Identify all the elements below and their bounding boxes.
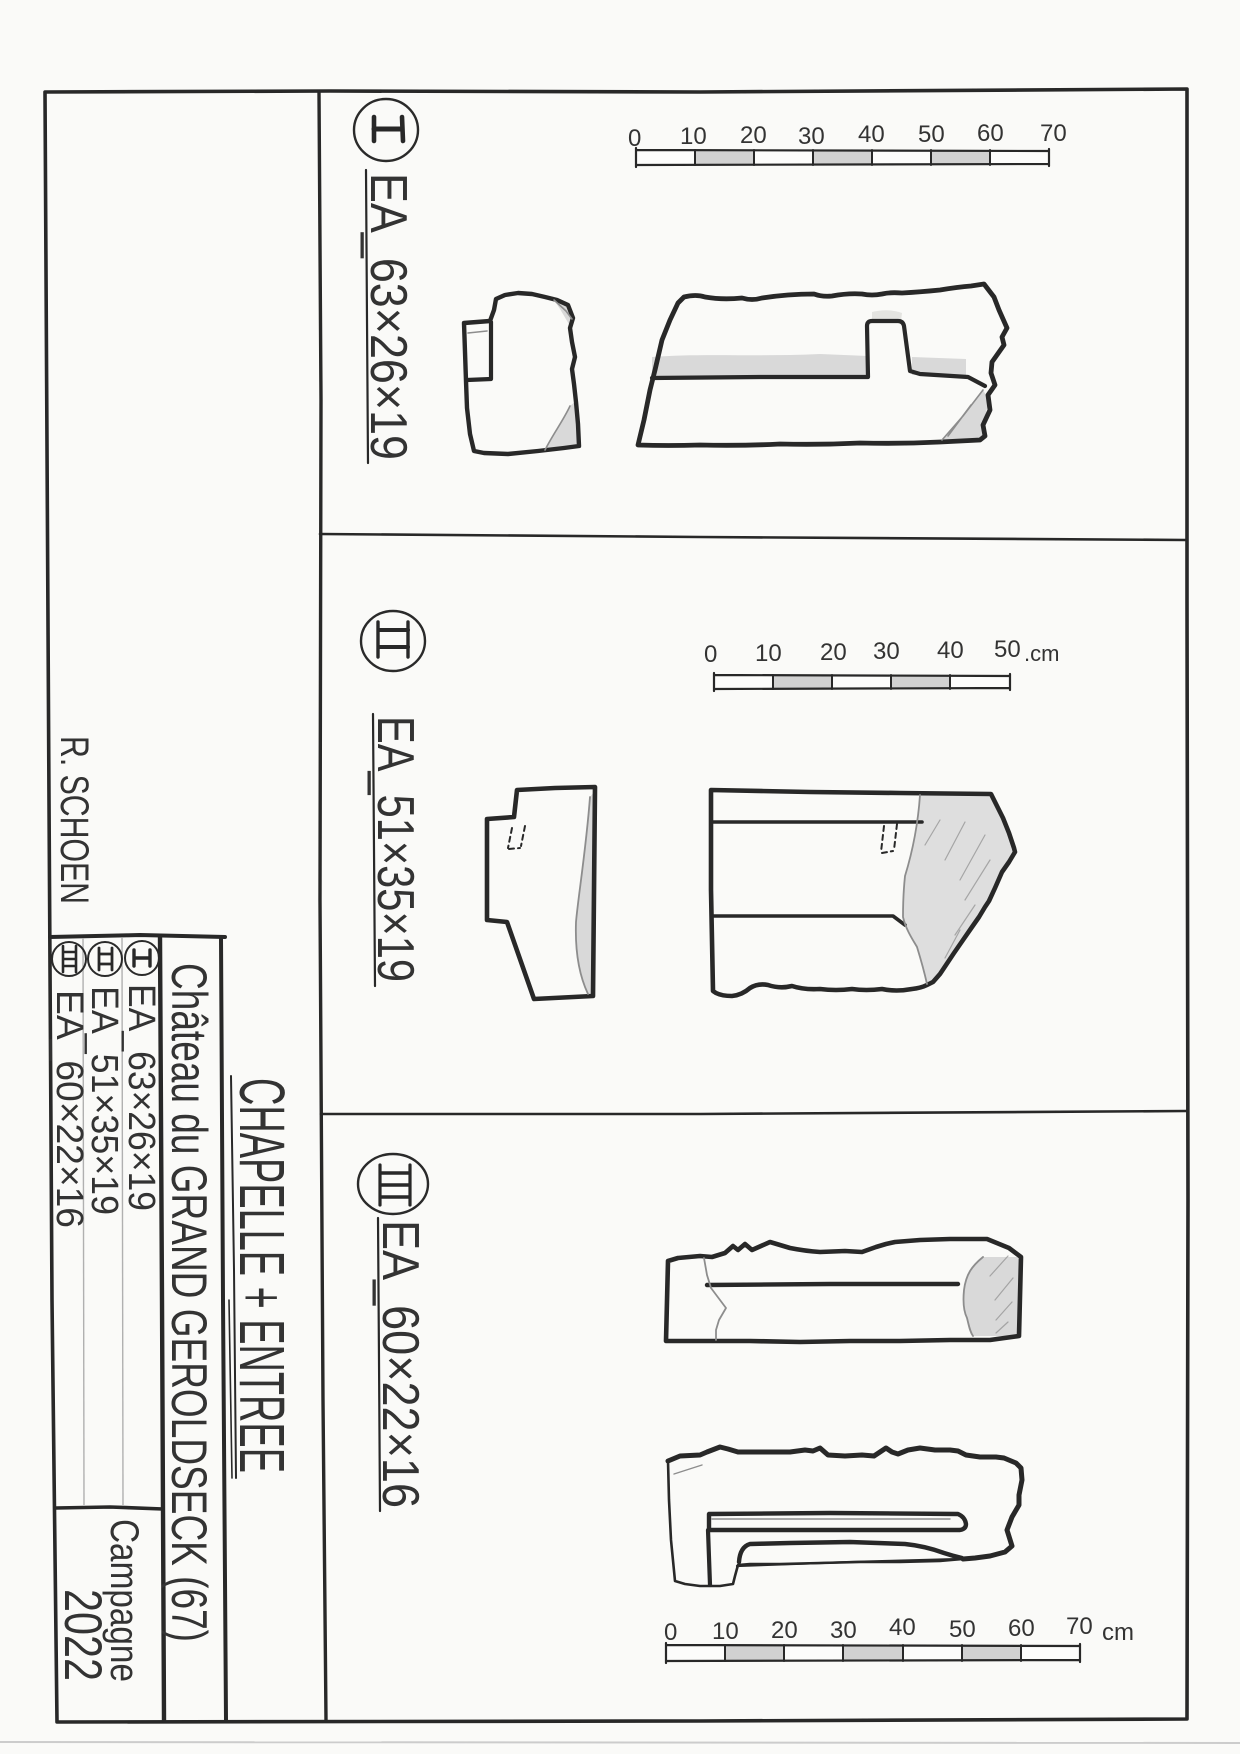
svg-text:20: 20	[820, 639, 847, 666]
svg-text:Château du GRAND GEROLDSECK (6: Château du GRAND GEROLDSECK (67)	[161, 963, 217, 1642]
svg-text:CHAPELLE + ENTREE: CHAPELLE + ENTREE	[226, 1078, 298, 1473]
svg-text:2022: 2022	[53, 1589, 112, 1681]
svg-text:30: 30	[830, 1617, 857, 1644]
svg-text:R. SCHOEN: R. SCHOEN	[52, 736, 96, 904]
svg-text:50: 50	[949, 1616, 976, 1643]
svg-text:40: 40	[889, 1614, 916, 1641]
svg-text:60: 60	[977, 120, 1004, 147]
svg-text:.cm: .cm	[1024, 641, 1059, 666]
svg-text:20: 20	[771, 1617, 798, 1644]
svg-text:10: 10	[712, 1618, 739, 1645]
svg-text:70: 70	[1066, 1613, 1093, 1640]
svg-text:40: 40	[937, 637, 964, 664]
svg-text:0: 0	[628, 125, 641, 152]
svg-text:50: 50	[994, 636, 1021, 663]
svg-text:20: 20	[740, 122, 767, 149]
svg-text:60: 60	[1008, 1615, 1035, 1642]
svg-text:0: 0	[704, 641, 717, 668]
svg-text:50: 50	[918, 121, 945, 148]
svg-text:40: 40	[858, 121, 885, 148]
svg-text:EA_63×26×19: EA_63×26×19	[120, 984, 162, 1211]
svg-text:cm: cm	[1102, 1619, 1134, 1646]
svg-text:0: 0	[664, 1619, 677, 1646]
svg-text:EA_60×22×16: EA_60×22×16	[48, 990, 90, 1228]
svg-text:10: 10	[680, 123, 707, 150]
svg-text:70: 70	[1040, 120, 1067, 147]
svg-text:30: 30	[873, 638, 900, 665]
svg-text:10: 10	[755, 640, 782, 667]
svg-text:30: 30	[798, 123, 825, 150]
